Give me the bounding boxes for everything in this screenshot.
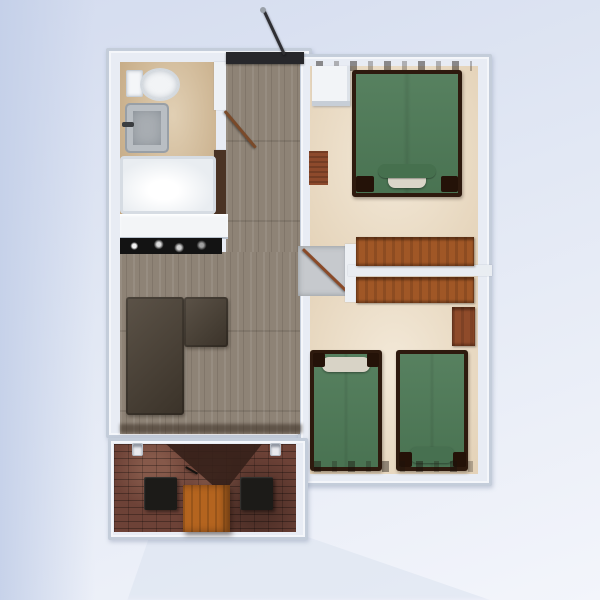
nightstand[interactable] (452, 307, 475, 346)
entry-threshold (226, 52, 304, 64)
wall-lamp-left[interactable] (132, 443, 143, 456)
single-bed-left-pillow (322, 357, 370, 372)
background-left-band (0, 0, 95, 600)
single-bed-left-post-r (367, 353, 379, 367)
bedroom-divider-wall (348, 265, 492, 276)
toilet-bowl[interactable] (140, 68, 180, 101)
sink[interactable] (125, 103, 169, 153)
bathtub[interactable] (120, 156, 216, 214)
sofa-sectional-chaise[interactable] (184, 297, 228, 347)
double-bed-post-left (356, 176, 374, 192)
single-bed-left-post-l (313, 353, 325, 367)
kitchen-counter[interactable] (120, 214, 228, 239)
entry-door-handle (260, 7, 266, 13)
dresser-top-bedroom[interactable] (356, 237, 474, 266)
kitchen-counter-black[interactable] (120, 238, 222, 254)
floorplan-scene (0, 0, 600, 600)
bathroom-wall-segment (214, 62, 226, 110)
sink-faucet (122, 122, 134, 127)
white-dresser[interactable] (312, 66, 350, 106)
sofa-sectional-main[interactable] (126, 297, 184, 415)
dresser-bottom-bedroom[interactable] (356, 277, 474, 303)
double-bed-duvet-fold (378, 164, 436, 178)
patio-table[interactable] (183, 485, 230, 532)
living-bottom-shadow (120, 424, 302, 433)
wall-lamp-right[interactable] (270, 443, 281, 456)
small-rug[interactable] (309, 151, 328, 185)
bottom-wall-clutter (314, 461, 476, 472)
patio-chair-right[interactable] (240, 477, 273, 510)
double-bed-post-right (441, 176, 458, 192)
patio-chair-left[interactable] (144, 477, 177, 510)
